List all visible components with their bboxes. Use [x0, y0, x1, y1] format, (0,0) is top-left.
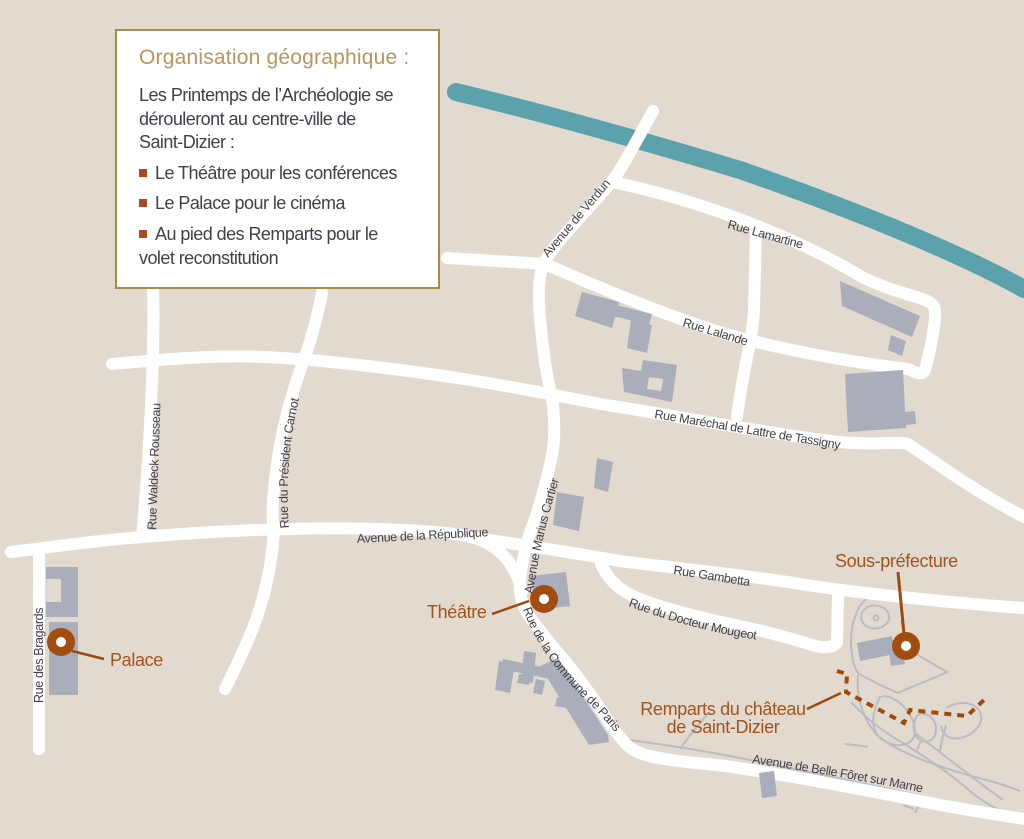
- svg-text:Avenue de Verdun: Avenue de Verdun: [540, 176, 614, 260]
- svg-text:de Saint-Dizier: de Saint-Dizier: [667, 717, 780, 737]
- svg-text:Rue Lamartine: Rue Lamartine: [726, 217, 805, 251]
- svg-text:Sous-préfecture: Sous-préfecture: [835, 551, 958, 571]
- svg-text:Remparts du château: Remparts du château: [640, 699, 805, 719]
- svg-text:Palace: Palace: [110, 650, 163, 670]
- svg-text:Rue Maréchal de Lattre de Tass: Rue Maréchal de Lattre de Tassigny: [654, 407, 843, 452]
- svg-text:Théâtre: Théâtre: [427, 602, 487, 622]
- svg-text:Rue du Docteur Mougeot: Rue du Docteur Mougeot: [627, 596, 758, 643]
- svg-text:Rue des Bragards: Rue des Bragards: [32, 608, 46, 703]
- svg-text:Rue Lalande: Rue Lalande: [681, 315, 750, 348]
